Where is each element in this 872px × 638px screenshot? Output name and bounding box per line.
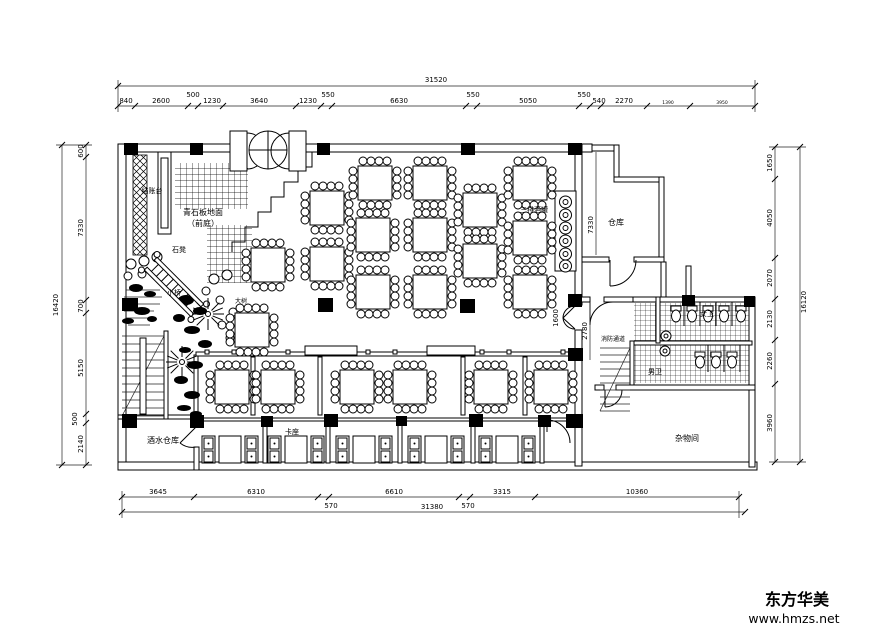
dim: 550 — [466, 91, 479, 99]
dining-table-icon — [404, 266, 456, 318]
dim-door: 1600 — [552, 309, 560, 327]
dining-table-icon — [404, 157, 456, 209]
dining-table-icon — [384, 361, 436, 413]
dim: 10360 — [626, 488, 648, 496]
double-door — [563, 306, 575, 329]
label-tree: 大树 — [235, 297, 247, 305]
toilet-icon — [671, 306, 681, 322]
dining-table-icon — [301, 182, 353, 234]
floor-plan-canvas: 31520 840 2600 500 1230 3640 1230 550 66… — [0, 0, 872, 638]
booth-icon — [336, 436, 392, 463]
dining-table-icon — [404, 209, 456, 261]
dim: 2270 — [615, 97, 633, 105]
label-warehouse: 仓库 — [608, 217, 624, 227]
dim: 2130 — [766, 310, 774, 328]
dining-table-icon — [504, 212, 556, 264]
floor-plan-page: 31520 840 2600 500 1230 3640 1230 550 66… — [0, 0, 872, 638]
dim: 500 — [71, 412, 79, 425]
toilet-icon — [727, 352, 737, 368]
dim: 2260 — [766, 352, 774, 370]
beverage-store-door — [180, 427, 196, 447]
upper-dining-tables — [226, 157, 556, 356]
dim: 3960 — [766, 414, 774, 432]
dim-left-total: 16420 — [52, 294, 60, 316]
dim: 1390 — [662, 100, 674, 106]
label-beverage-store: 酒水仓库 — [147, 435, 179, 445]
entrance-revolving-door — [230, 131, 306, 171]
dim: 5150 — [77, 359, 85, 377]
dining-table-icon — [504, 157, 556, 209]
dim: 2140 — [77, 435, 85, 453]
stairs-bottom-left — [122, 336, 164, 416]
label-mens-wc: 男卫 — [648, 368, 662, 376]
dim: 700 — [77, 299, 85, 312]
dim-warehouse: 7330 — [587, 216, 595, 234]
dim: 840 — [119, 97, 132, 105]
label-storage: 杂物间 — [675, 433, 699, 443]
dim-corridor: 2780 — [581, 322, 589, 340]
label-paving-sub: （前庭） — [187, 218, 219, 228]
dim: 540 — [592, 97, 605, 105]
warehouse-door — [610, 260, 636, 286]
label-fire-corridor: 消防通道 — [601, 335, 625, 343]
watermark-brand: 东方华美 — [765, 590, 830, 609]
fire-stairs — [600, 348, 630, 411]
dim: 6310 — [247, 488, 265, 496]
dim: 500 — [186, 91, 199, 99]
dim-top-total: 31520 — [425, 76, 447, 84]
dim: 2600 — [152, 97, 170, 105]
dim: 550 — [577, 91, 590, 99]
dining-table-icon — [347, 266, 399, 318]
dining-table-icon — [504, 266, 556, 318]
dining-table-icon — [465, 361, 517, 413]
dining-table-icon — [331, 361, 383, 413]
dim: 550 — [321, 91, 334, 99]
label-cashier: 结账台 — [142, 186, 163, 195]
dim: 3645 — [149, 488, 167, 496]
cashier-counter-hatch — [133, 155, 147, 255]
booth-icon — [268, 436, 324, 463]
dim: 6610 — [385, 488, 403, 496]
dim: 600 — [77, 144, 85, 157]
toilet-icon — [711, 352, 721, 368]
dim: 3315 — [493, 488, 511, 496]
dim: 6630 — [390, 97, 408, 105]
dining-table-icon — [454, 184, 506, 236]
label-paving: 青石板地面 — [183, 207, 223, 217]
corridor-door — [590, 302, 613, 325]
label-bridge: 小桥 — [167, 288, 181, 297]
toilet-icon — [687, 306, 697, 322]
watermark: 东方华美 www.hmzs.net — [748, 590, 839, 626]
toilet-icon — [736, 306, 746, 322]
dim: 1650 — [766, 154, 774, 172]
wine-jar-rack — [555, 191, 576, 272]
dining-table-icon — [252, 361, 304, 413]
dim: 4050 — [766, 209, 774, 227]
dim: 570 — [324, 502, 337, 510]
dim: 5050 — [519, 97, 537, 105]
label-womens-wc: 女卫 — [700, 309, 714, 318]
dim: 3640 — [250, 97, 268, 105]
dim-bottom-total: 31380 — [421, 503, 443, 511]
booth-icon — [479, 436, 535, 463]
label-booth: 卡座 — [285, 427, 299, 436]
booth-icon — [408, 436, 464, 463]
tree-icon — [192, 298, 224, 330]
middle-dining-tables — [206, 361, 577, 413]
dim: 1230 — [203, 97, 221, 105]
dining-table-icon — [454, 235, 506, 287]
dining-table-icon — [301, 238, 353, 290]
dim: 570 — [461, 502, 474, 510]
dim: 3950 — [716, 100, 728, 106]
dining-table-icon — [525, 361, 577, 413]
dim: 1230 — [299, 97, 317, 105]
watermark-site: www.hmzs.net — [748, 611, 839, 626]
storage-room-door — [605, 390, 622, 407]
dim: 2070 — [766, 269, 774, 287]
dining-table-icon — [206, 361, 258, 413]
dining-table-icon — [349, 157, 401, 209]
toilet-icon — [695, 352, 705, 368]
toilet-icon — [719, 306, 729, 322]
label-wine-jars: 三排酒罐 — [520, 205, 548, 214]
dim: 7330 — [77, 219, 85, 237]
tree-icon — [166, 346, 198, 378]
booth-icon — [202, 436, 258, 463]
dining-table-icon — [347, 209, 399, 261]
label-stone-bench: 石凳 — [172, 245, 186, 254]
dim-right-total: 16120 — [800, 291, 808, 313]
booth-row — [202, 436, 535, 463]
